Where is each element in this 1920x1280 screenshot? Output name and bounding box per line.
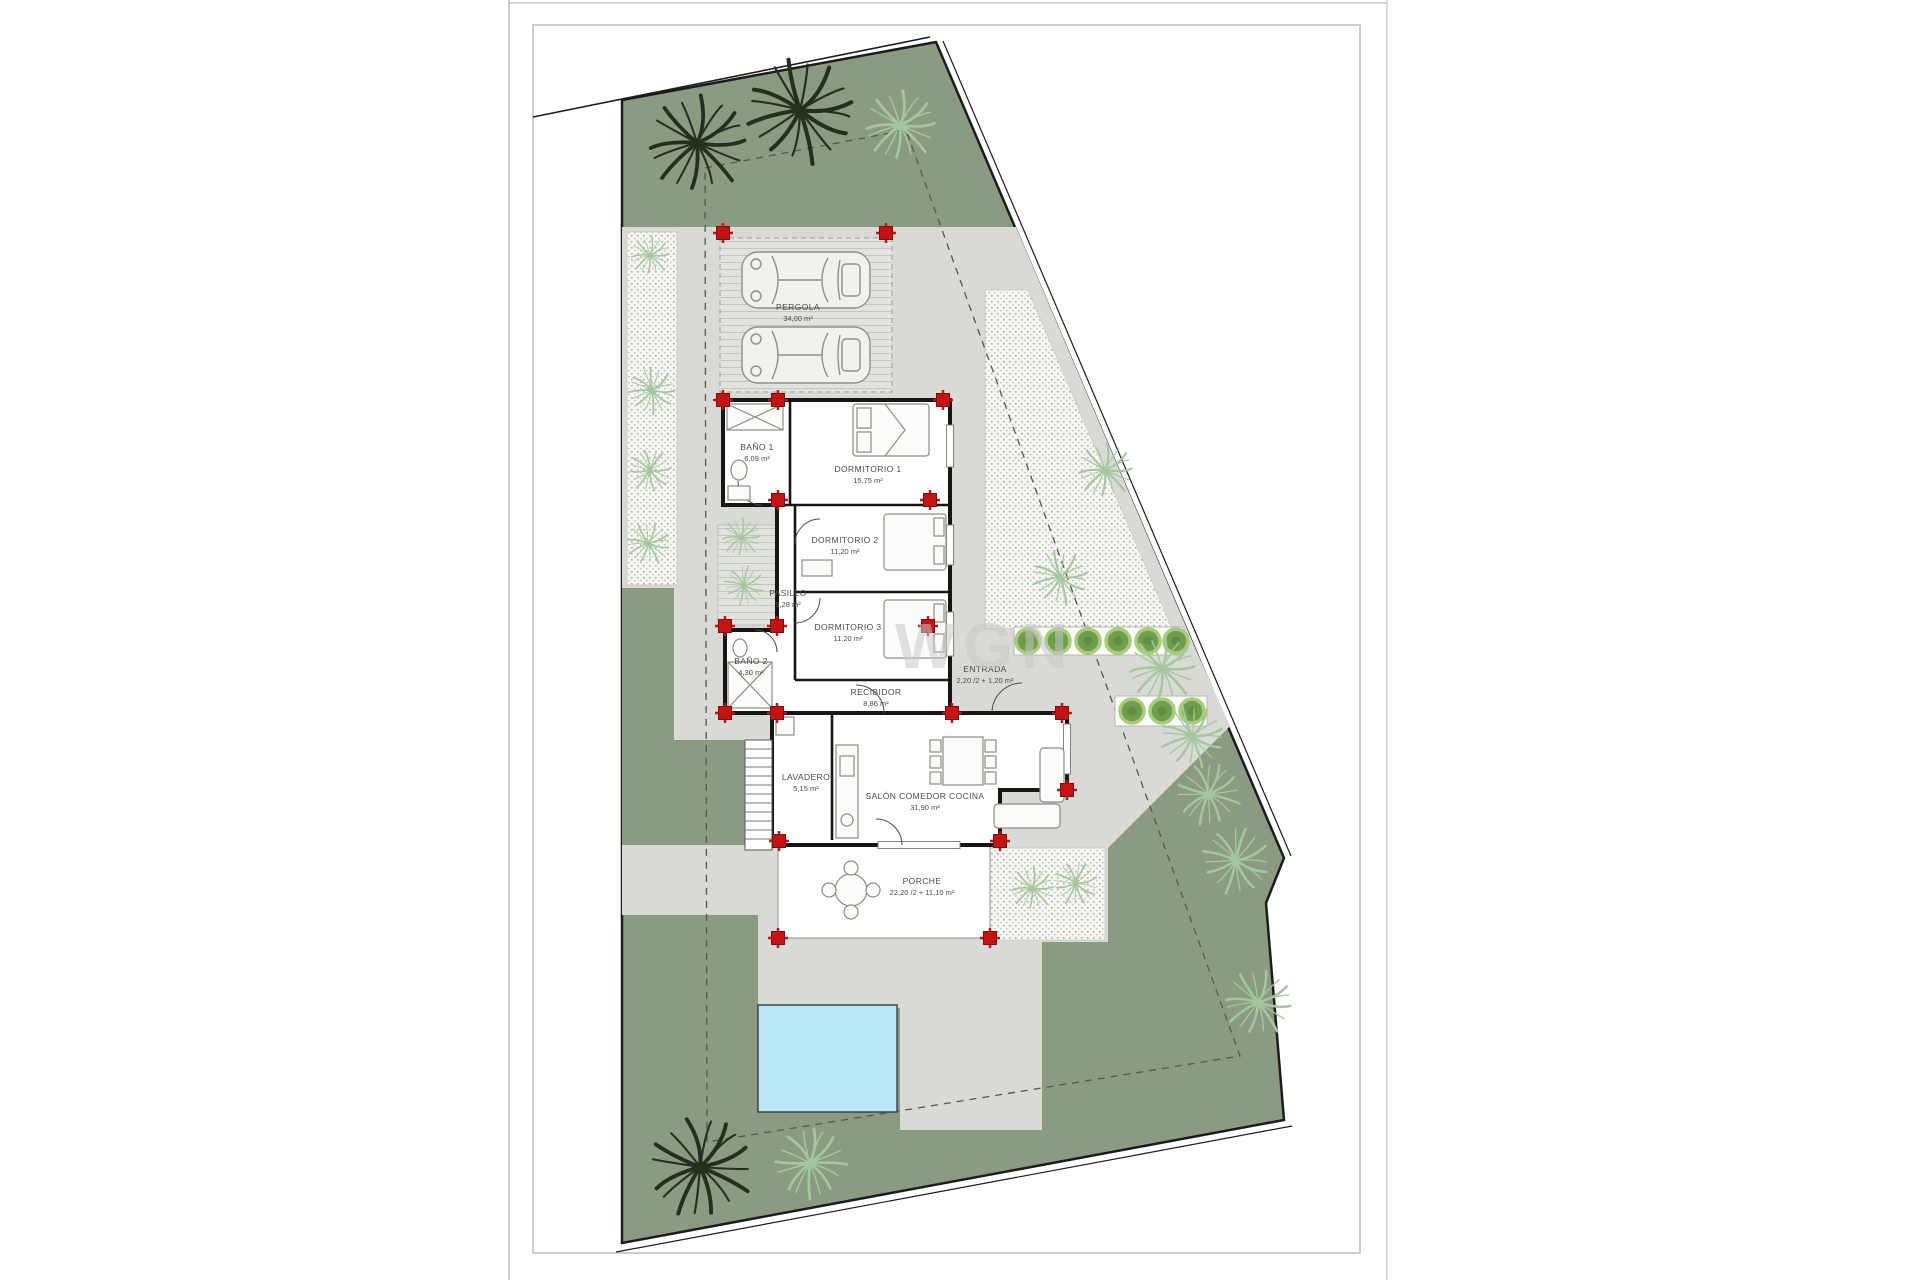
room-area-dormitorio2: 11,20 m² [830, 547, 860, 556]
room-label-pasillo: PASILLO [769, 588, 807, 598]
column-marker [876, 223, 896, 243]
garden-strip-left-2 [622, 740, 745, 845]
car-2 [742, 327, 870, 383]
column-marker [933, 390, 953, 410]
bush-icon [1150, 699, 1174, 723]
column-marker [942, 703, 962, 723]
column-marker [713, 223, 733, 243]
room-label-bano1: BAÑO 1 [740, 442, 774, 452]
room-area-pergola: 34,00 m² [783, 314, 813, 323]
column-marker [990, 831, 1010, 851]
room-label-lavadero: LAVADERO [782, 772, 830, 782]
room-area-porche: 22,20 /2 + 11,10 m² [890, 888, 955, 897]
room-label-pergola: PERGOLA [776, 302, 820, 312]
floor-plan-svg: PERGOLA 34,00 m² BAÑO 1 6,09 m² DORMITOR… [0, 0, 1920, 1280]
room-area-dormitorio1: 15,75 m² [853, 476, 883, 485]
bush-icon [1076, 629, 1100, 653]
room-label-bano2: BAÑO 2 [734, 656, 768, 666]
room-label-salon: SALÓN COMEDOR COCINA [866, 791, 985, 801]
room-label-dormitorio1: DORMITORIO 1 [835, 464, 902, 474]
watermark: WGN [895, 610, 1075, 682]
stairs [745, 740, 772, 850]
room-label-dormitorio2: DORMITORIO 2 [812, 535, 879, 545]
column-marker [767, 703, 787, 723]
car-1 [742, 252, 870, 308]
column-marker [1052, 703, 1072, 723]
bush-icon [1164, 629, 1188, 653]
column-marker [768, 390, 788, 410]
room-area-pasillo: 9,28 m² [775, 600, 801, 609]
column-marker [768, 490, 788, 510]
room-area-bano2: 4,30 m² [738, 668, 764, 677]
room-area-recibidor: 8,86 m² [863, 699, 889, 708]
bush-icon [1120, 699, 1144, 723]
room-label-recibidor: RECIBIDOR [851, 687, 902, 697]
swimming-pool [758, 1005, 897, 1112]
column-marker [769, 831, 789, 851]
bush-icon [1106, 629, 1130, 653]
column-marker [767, 616, 787, 636]
room-label-porche: PORCHE [903, 876, 942, 886]
room-area-dormitorio3: 11,20 m² [833, 634, 863, 643]
column-marker [715, 703, 735, 723]
gravel-area-right [985, 290, 1172, 628]
gravel-patch-porch [990, 848, 1105, 940]
column-marker [768, 928, 788, 948]
column-marker [920, 490, 940, 510]
room-area-salon: 31,90 m² [910, 803, 940, 812]
room-area-bano1: 6,09 m² [744, 454, 770, 463]
garden-strip-left [622, 588, 674, 740]
bush-icon [1136, 629, 1160, 653]
column-marker [980, 928, 1000, 948]
room-area-lavadero: 5,15 m² [793, 784, 819, 793]
column-marker [1057, 780, 1077, 800]
room-label-dormitorio3: DORMITORIO 3 [815, 622, 882, 632]
column-marker [713, 390, 733, 410]
column-marker [715, 616, 735, 636]
porch-floor [778, 845, 990, 938]
gravel-strip-left [627, 232, 677, 585]
site-plan-page: PERGOLA 34,00 m² BAÑO 1 6,09 m² DORMITOR… [0, 0, 1920, 1280]
